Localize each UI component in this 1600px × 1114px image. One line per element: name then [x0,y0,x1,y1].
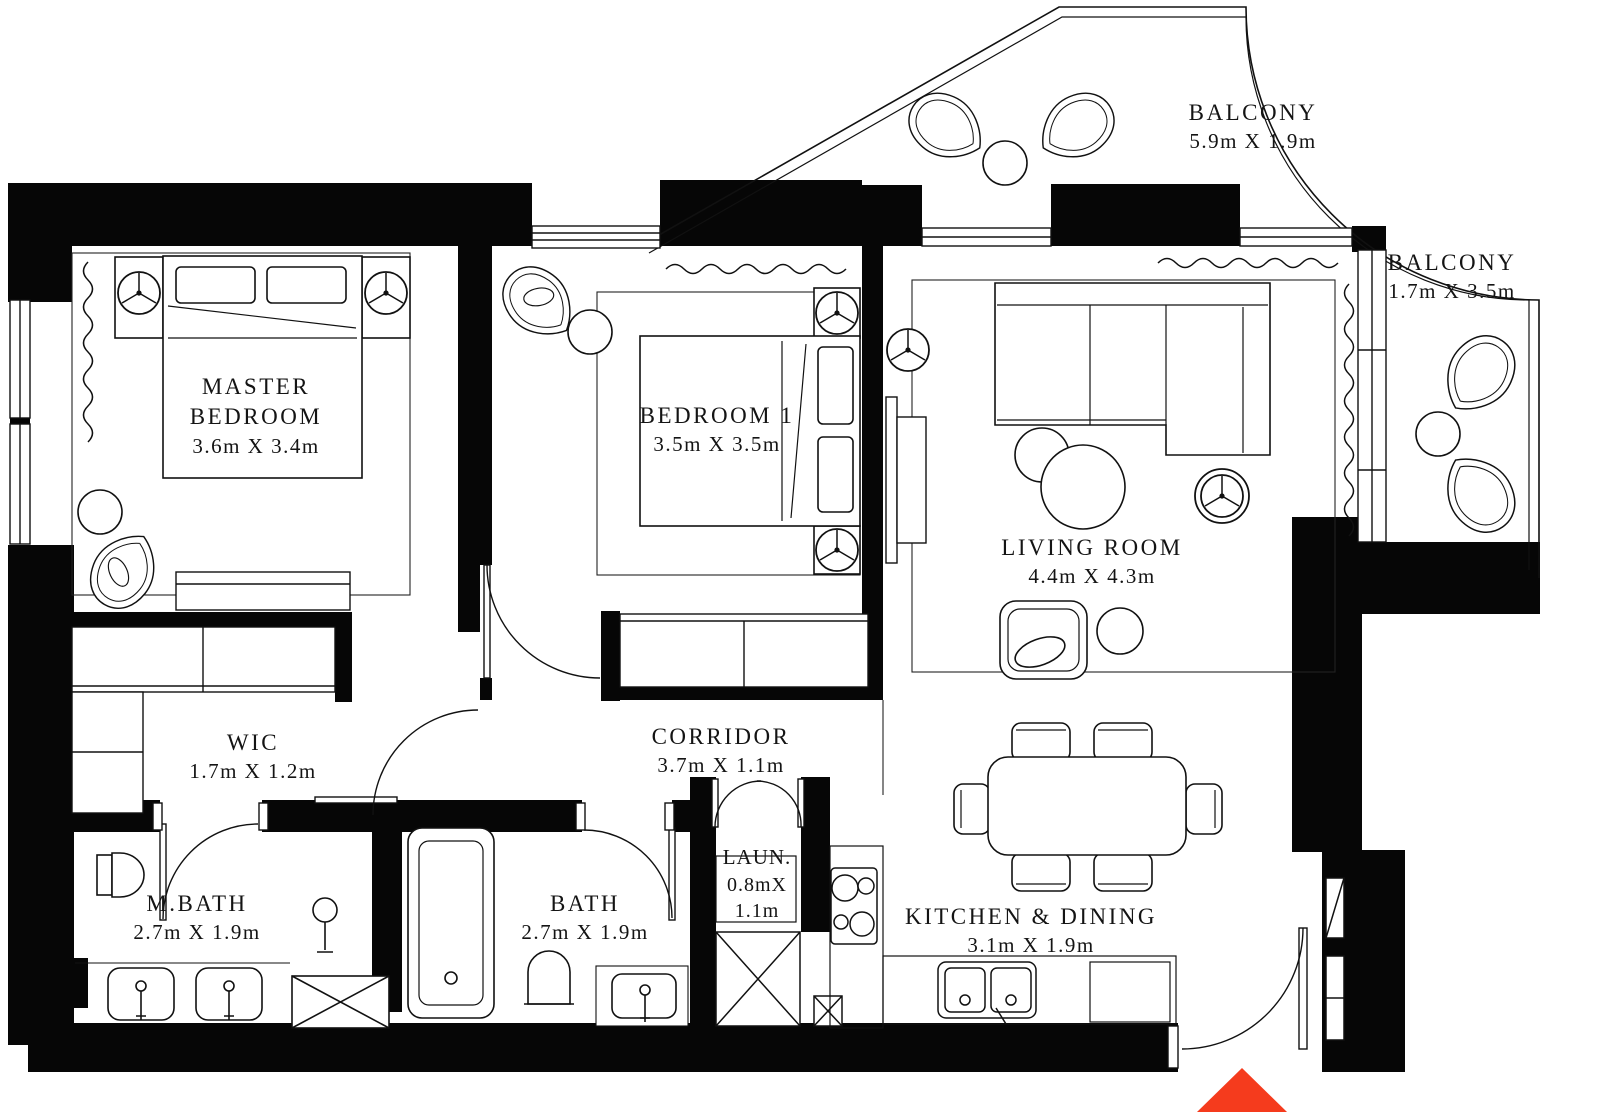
shafts [716,932,842,1026]
room-dims: 3.5m X 3.5m [640,431,795,459]
room-label-living-room: LIVING ROOM 4.4m X 4.3m [1001,533,1182,591]
room-name: BEDROOM [190,402,323,432]
room-dims: 5.9m X 1.9m [1189,128,1318,156]
room-label-m-bath: M.BATH 2.7m X 1.9m [133,889,260,947]
lounge-chair [1000,601,1087,679]
lamp-icon [365,272,407,314]
room-dims: 3.6m X 3.4m [190,433,323,461]
room-dims: 2.7m X 1.9m [521,919,648,947]
side-table [1097,608,1143,654]
room-dims: 3.1m X 1.9m [905,932,1157,960]
stove [831,868,877,944]
side-table [568,310,612,354]
dining-set [954,723,1222,891]
room-dims: 3.7m X 1.1m [652,752,791,780]
kitchen-sink [938,962,1036,1024]
side-table [78,490,122,534]
room-name: BATH [521,889,648,919]
lamp-icon [118,272,160,314]
lamp-icon [816,529,858,571]
room-name: BALCONY [1388,248,1517,278]
room-label-balcony-right: BALCONY 1.7m X 3.5m [1388,248,1517,306]
room-dims: 1.7m X 1.2m [189,758,316,786]
balcony-top-chairs [897,81,1125,185]
room-name: BALCONY [1189,98,1318,128]
kitchen-wall-units [1326,878,1344,1040]
room-label-master-bedroom: MASTER BEDROOM 3.6m X 3.4m [190,372,323,460]
room-label-wic: WIC 1.7m X 1.2m [189,728,316,786]
room-dims: 4.4m X 4.3m [1001,563,1182,591]
entrance-arrow [1197,1068,1287,1112]
room-label-balcony-top: BALCONY 5.9m X 1.9m [1189,98,1318,156]
armchair [78,522,169,620]
master-dresser [176,572,350,610]
room-name: LAUN. [723,844,792,872]
room-name: CORRIDOR [652,722,791,752]
bedroom1-wardrobe [620,614,868,687]
tv-console [886,397,926,563]
room-name: KITCHEN & DINING [905,902,1157,932]
room-name: WIC [189,728,316,758]
room-name: M.BATH [133,889,260,919]
lamp-icon [816,292,858,334]
lamp-icon [887,329,929,371]
floor-lamp [1195,469,1249,523]
room-dims: 0.8mX [723,871,792,897]
room-label-bedroom-1: BEDROOM 1 3.5m X 3.5m [640,401,795,459]
room-dims: 2.7m X 1.9m [133,919,260,947]
room-label-bath: BATH 2.7m X 1.9m [521,889,648,947]
room-label-laundry: LAUN. 0.8mX 1.1m [723,844,792,925]
balcony-right-chairs [1416,323,1528,545]
room-label-corridor: CORRIDOR 3.7m X 1.1m [652,722,791,780]
room-label-kitchen-dining: KITCHEN & DINING 3.1m X 1.9m [905,902,1157,960]
room-name: BEDROOM 1 [640,401,795,431]
room-name: LIVING ROOM [1001,533,1182,563]
room-dims: 1.7m X 3.5m [1388,278,1517,306]
coffee-table [1041,445,1125,529]
floorplan: MASTER BEDROOM 3.6m X 3.4m BEDROOM 1 3.5… [0,0,1600,1114]
room-dims: 1.1m [723,898,792,924]
room-name: MASTER [190,372,323,402]
